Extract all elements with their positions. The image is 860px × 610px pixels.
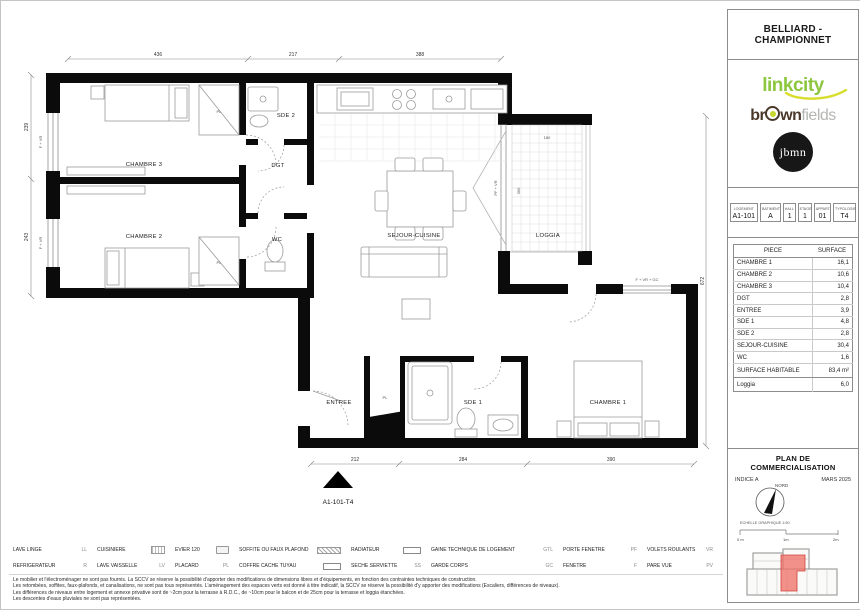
placard-label-entree: PL xyxy=(383,395,389,400)
sink-icon xyxy=(216,546,229,554)
plan-title-section: PLAN DE COMMERCIALISATION INDICE A MARS … xyxy=(728,448,858,480)
room-label-dgt: DGT xyxy=(271,163,284,169)
legend-item: SECHE SERVIETTESS xyxy=(351,558,431,574)
placard-label-chambre2: PL xyxy=(217,260,223,265)
table-row: DGT2,8 xyxy=(734,293,853,305)
legend-item: FENETREF xyxy=(563,558,647,574)
dim-left-1: 239 xyxy=(24,123,30,132)
window-label-loggia: PF + VR xyxy=(493,180,498,195)
unit-cell-typologie: TYPOLOGIE T4 xyxy=(833,203,856,222)
dim-top-1: 436 xyxy=(154,52,163,58)
dim-left-2: 243 xyxy=(24,233,30,242)
washbasin-sde2 xyxy=(250,115,268,127)
table-row: SEJOUR-CUISINE30,4 xyxy=(734,340,853,352)
linkcity-swoosh-icon xyxy=(784,89,854,101)
toilet-wc xyxy=(265,240,285,271)
dim-top-2: 217 xyxy=(289,52,298,58)
legend-item: PARE VUEPV xyxy=(647,558,723,574)
footnote-line: Les descentes d'eaux pluviales ne sont p… xyxy=(13,596,718,602)
jbmn-logo: jbmn xyxy=(773,132,813,172)
unit-cell-hall: HALL 1 xyxy=(783,203,796,222)
dim-bottom-1: 212 xyxy=(351,457,360,463)
room-label-sde1: SDE 1 xyxy=(464,400,482,406)
unit-label: A1-101-T4 xyxy=(323,499,354,506)
north-label: NORD xyxy=(775,483,789,488)
window-label-left2: F + VR xyxy=(38,237,43,250)
surface-annex-row: Loggia6,0 xyxy=(734,378,853,392)
scale-tick-0: 0 m xyxy=(737,537,744,542)
brownfields-o-icon xyxy=(765,106,780,121)
dim-right: 672 xyxy=(700,277,706,286)
bed-chambre2 xyxy=(105,248,204,288)
legend-item: PLACARDPL xyxy=(175,558,239,574)
plan-sheet: 436 217 388 212 284 390 672 239 243 xyxy=(0,0,860,610)
door-chambre1 xyxy=(568,294,596,322)
unit-cell-logement: LOGEMENT A1-101 xyxy=(730,203,758,222)
radiator-box-icon xyxy=(403,547,421,554)
room-label-loggia: LOGGIA xyxy=(536,233,560,239)
stove-icon xyxy=(151,546,165,554)
pipe-box-icon xyxy=(323,563,341,570)
entrance-arrow-icon xyxy=(323,471,353,488)
shelf-chambre2 xyxy=(67,186,145,194)
hatched-soffit-icon xyxy=(317,547,341,554)
legend-item: REFRIGERATEURR xyxy=(13,558,97,574)
surface-table-section: PIECE SURFACE CHAMBRE 116,1 CHAMBRE 210,… xyxy=(728,238,858,420)
shower-sde2 xyxy=(248,87,278,111)
legend-item: GARDE CORPSGC xyxy=(431,558,563,574)
window-label-chambre1: F + VR + GC xyxy=(635,277,658,282)
window-chambre1-icon xyxy=(623,286,671,293)
room-label-sde2: SDE 2 xyxy=(277,113,295,119)
table-row: WC1,6 xyxy=(734,352,853,364)
sofa xyxy=(361,247,447,277)
plan-title: PLAN DE COMMERCIALISATION xyxy=(735,454,851,472)
room-label-entree: ENTREE xyxy=(326,400,351,406)
room-label-sejour: SEJOUR-CUISINE xyxy=(387,233,440,239)
footnotes: Le mobilier et l'électroménager ne sont … xyxy=(13,577,718,603)
coffee-table xyxy=(402,299,430,319)
brownfields-logo: brwnfields xyxy=(750,106,836,125)
legend-item: RADIATEUR xyxy=(351,542,431,558)
title-block: BELLIARD - CHAMPIONNET linkcity brwnfiel… xyxy=(727,9,859,603)
dim-bottom-2: 284 xyxy=(459,457,468,463)
legend-item: SOFFITE OU FAUX PLAFOND xyxy=(239,542,351,558)
legend-item: CUISINIERE xyxy=(97,542,175,558)
north-and-scale-section: NORD ECHELLE GRAPHIQUE 1:50 0 m 1m 2m xyxy=(728,480,858,545)
window-left-2-icon xyxy=(48,219,58,267)
bed-chambre3 xyxy=(91,85,189,121)
toilet-sde1 xyxy=(455,408,477,437)
loggia-dim-width: 180 xyxy=(544,135,551,140)
linkcity-logo: linkcity xyxy=(762,75,823,99)
kitchen-floor-tiles xyxy=(319,113,507,161)
room-label-wc: WC xyxy=(272,237,282,243)
col-piece: PIECE xyxy=(734,245,813,258)
legend-item: COFFRE CACHE TUYAU xyxy=(239,558,351,574)
north-scale-drawing: NORD ECHELLE GRAPHIQUE 1:50 0 m 1m 2m xyxy=(728,480,858,545)
scale-tick-2: 2m xyxy=(833,537,839,542)
unit-cell-etage: ETAGE 1 xyxy=(798,203,812,222)
unit-cell-batiment: BATIMENT A xyxy=(760,203,782,222)
unit-info-table: LOGEMENT A1-101 BATIMENT A HALL 1 ETAGE … xyxy=(728,188,858,238)
shower-sde1 xyxy=(408,362,452,424)
window-label-left1: F + VR xyxy=(38,136,43,149)
surface-total-row: SURFACE HABITABLE83,4 m² xyxy=(734,364,853,378)
window-left-1-icon xyxy=(48,113,58,171)
loggia-glazing-icon xyxy=(473,125,506,251)
scale-bar-icon xyxy=(740,530,838,535)
door-wc xyxy=(258,187,284,213)
logos-section: linkcity brwnfields jbmn xyxy=(728,60,858,188)
table-row: CHAMBRE 310,4 xyxy=(734,281,853,293)
table-row: SDE 22,8 xyxy=(734,328,853,340)
legend-item: LAVE LINGELL xyxy=(13,542,97,558)
door-sde1 xyxy=(474,362,501,389)
project-title: BELLIARD - CHAMPIONNET xyxy=(728,24,858,46)
door-entrance xyxy=(313,391,348,426)
table-row: CHAMBRE 116,1 xyxy=(734,258,853,270)
dim-top-3: 388 xyxy=(416,52,425,58)
floorplan-drawing: 436 217 388 212 284 390 672 239 243 xyxy=(1,1,727,541)
legend: LAVE LINGELL CUISINIERE EVIER 120 SOFFIT… xyxy=(13,542,723,574)
scale-tick-1: 1m xyxy=(783,537,789,542)
surface-header-row: PIECE SURFACE xyxy=(734,245,853,258)
key-plan-map xyxy=(743,547,843,599)
shelf-chambre3 xyxy=(67,167,145,175)
project-title-section: BELLIARD - CHAMPIONNET xyxy=(728,10,858,60)
table-row: CHAMBRE 210,6 xyxy=(734,269,853,281)
legend-item: PORTE FENETREPF xyxy=(563,542,647,558)
legend-item: EVIER 120 xyxy=(175,542,239,558)
north-needle-icon xyxy=(764,489,776,514)
col-surface: SURFACE xyxy=(812,245,852,258)
furniture xyxy=(67,85,659,438)
surface-table: PIECE SURFACE CHAMBRE 116,1 CHAMBRE 210,… xyxy=(733,244,853,392)
key-plan-section xyxy=(728,545,858,600)
dining-table xyxy=(375,158,466,240)
placard-label-chambre3: PL xyxy=(217,109,223,114)
loggia-dim-height: 360 xyxy=(516,187,521,194)
unit-cell-appart: APPART. 01 xyxy=(814,203,831,222)
kitchen-counter xyxy=(317,85,507,113)
legend-item: LAVE VAISSELLELV xyxy=(97,558,175,574)
room-label-chambre1: CHAMBRE 1 xyxy=(590,400,627,406)
scale-label: ECHELLE GRAPHIQUE 1:50 xyxy=(740,521,790,525)
legend-item: VOLETS ROULANTSVR xyxy=(647,542,723,558)
legend-item: GAINE TECHNIQUE DE LOGEMENTGTL xyxy=(431,542,563,558)
room-label-chambre3: CHAMBRE 3 xyxy=(126,162,163,168)
table-row: ENTREE3,9 xyxy=(734,305,853,317)
dim-bottom-3: 390 xyxy=(607,457,616,463)
washbasin-sde1 xyxy=(488,415,518,435)
table-row: SDE 14,8 xyxy=(734,316,853,328)
room-label-chambre2: CHAMBRE 2 xyxy=(126,234,163,240)
footnote-divider xyxy=(9,574,723,575)
